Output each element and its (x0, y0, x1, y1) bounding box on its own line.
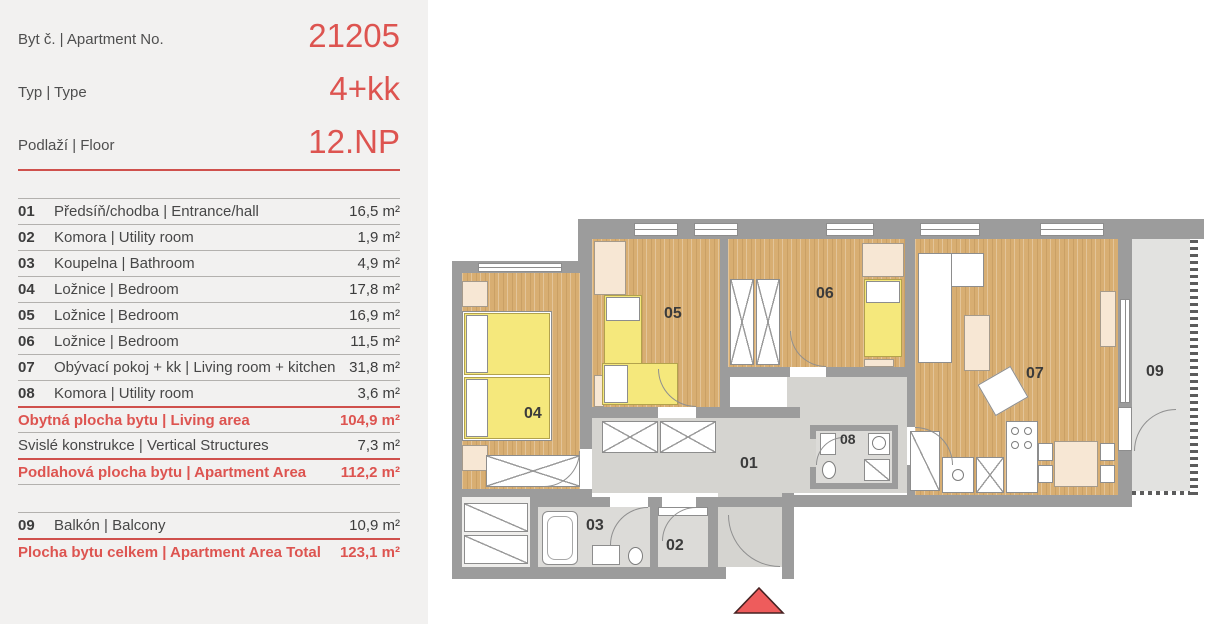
window (694, 223, 738, 236)
window (1040, 223, 1104, 236)
room-name: Ložnice | Bedroom (54, 307, 349, 324)
balcony-window (1120, 299, 1130, 403)
burner (1011, 427, 1019, 435)
balcony-edge-hatch (1190, 239, 1198, 495)
tv-cabinet (1100, 291, 1116, 347)
room-area: 3,6 m² (357, 385, 400, 402)
apartment-area-row: Podlahová plocha bytu | Apartment Area 1… (18, 458, 400, 484)
wardrobe (756, 279, 780, 365)
room-name: Ložnice | Bedroom (54, 281, 349, 298)
room-area: 31,8 m² (349, 359, 400, 376)
main-bottom-wall (794, 495, 1132, 507)
bed-pillow (604, 365, 628, 403)
hall-wardrobe (660, 421, 716, 453)
closet (594, 241, 626, 295)
wardrobe (464, 535, 528, 564)
hall-wardrobe (602, 421, 658, 453)
burner (1024, 441, 1032, 449)
table-gap (18, 485, 400, 512)
room-number: 06 (18, 333, 54, 350)
apartment-type-value: 4+kk (329, 72, 400, 105)
toilet (628, 547, 643, 565)
room-number: 09 (18, 517, 54, 534)
table-row: 08 Komora | Utility room 3,6 m² (18, 380, 400, 406)
vertical-structures-row: Svislé konstrukce | Vertical Structures … (18, 432, 400, 458)
window (826, 223, 874, 236)
summary-label: Svislé konstrukce | Vertical Structures (18, 437, 357, 454)
table-row: 05 Ložnice | Bedroom 16,9 m² (18, 302, 400, 328)
nightstand (462, 281, 488, 307)
room-06-bottom-wall (826, 367, 915, 377)
burner (1011, 441, 1019, 449)
total-label: Plocha bytu celkem | Apartment Area Tota… (18, 544, 340, 561)
bath-top-wall (648, 497, 662, 507)
room-area: 11,5 m² (350, 333, 400, 350)
room-name: Předsíň/chodba | Entrance/hall (54, 203, 349, 220)
kitchen-counter (976, 457, 1004, 493)
nightstand (864, 359, 894, 367)
room-number: 03 (18, 255, 54, 272)
room-05-bottom-wall (592, 407, 658, 418)
room-area: 4,9 m² (357, 255, 400, 272)
room-label-02: 02 (666, 537, 684, 555)
room-number: 08 (18, 385, 54, 402)
washing-machine-drum (872, 436, 886, 450)
apartment-type-row: Typ | Type 4+kk (18, 57, 400, 110)
room-number: 04 (18, 281, 54, 298)
apartment-number-row: Byt č. | Apartment No. 21205 (18, 4, 400, 57)
room-area: 1,9 m² (357, 229, 400, 246)
room-area: 16,5 m² (349, 203, 400, 220)
bath-02-divider (650, 507, 658, 567)
shower (864, 459, 890, 481)
wardrobe (730, 279, 754, 365)
apartment-type-label: Typ | Type (18, 84, 87, 105)
room-label-06: 06 (816, 285, 834, 303)
sofa (918, 253, 952, 363)
apartment-floor-label: Podlaží | Floor (18, 137, 114, 158)
room-area: 16,9 m² (349, 307, 400, 324)
summary-value: 104,9 m² (340, 412, 400, 429)
balcony-row: 09 Balkón | Balcony 10,9 m² (18, 512, 400, 538)
room-area: 17,8 m² (349, 281, 400, 298)
balcony-bottom-hatch (1132, 491, 1190, 495)
bath-top-wall (538, 497, 610, 507)
room-05-bottom-wall (696, 407, 800, 418)
room-name: Komora | Utility room (54, 385, 357, 402)
room-label-07: 07 (1026, 365, 1044, 383)
room-label-03: 03 (586, 517, 604, 535)
room-name: Ložnice | Bedroom (54, 333, 350, 350)
outer-wall-left (452, 261, 462, 579)
bed-pillow (466, 315, 488, 373)
room-number: 02 (18, 229, 54, 246)
room-label-08: 08 (840, 431, 856, 447)
room-06-07-divider (905, 239, 915, 377)
hall-07-wall (907, 377, 915, 427)
bath-top-wall (696, 497, 794, 507)
apartment-number-label: Byt č. | Apartment No. (18, 31, 164, 52)
room-name: Balkón | Balcony (54, 517, 349, 534)
outer-wall-bottom (452, 567, 726, 579)
apartment-floor-value: 12.NP (308, 125, 400, 158)
window (634, 223, 678, 236)
balcony-door-opening (1118, 407, 1132, 451)
chair (1038, 443, 1053, 461)
wardrobe (464, 503, 528, 532)
chair (1100, 443, 1115, 461)
apartment-info-panel: Byt č. | Apartment No. 21205 Typ | Type … (18, 4, 400, 564)
bed-pillow (866, 281, 900, 303)
floor-plan: 01 02 03 04 05 06 07 08 09 (452, 215, 1204, 624)
room-number: 07 (18, 359, 54, 376)
table-row: 01 Předsíň/chodba | Entrance/hall 16,5 m… (18, 198, 400, 224)
apartment-area-total-row: Plocha bytu celkem | Apartment Area Tota… (18, 538, 400, 564)
chair (1100, 465, 1115, 483)
summary-label: Obytná plocha bytu | Living area (18, 412, 340, 429)
bed-pillow (466, 379, 488, 437)
entrance-door-opening (726, 567, 782, 579)
closet (862, 243, 904, 277)
bathtub-inner (547, 516, 573, 560)
chair (1038, 465, 1053, 483)
total-value: 123,1 m² (340, 544, 400, 561)
apartment-sheet: { "colors": { "accent_red": "#dd5450", "… (0, 0, 1227, 624)
summary-label: Podlahová plocha bytu | Apartment Area (18, 464, 341, 481)
table-row: 07 Obývací pokoj + kk | Living room + ki… (18, 354, 400, 380)
room-06-bottom-wall (728, 367, 790, 377)
room-label-05: 05 (664, 305, 682, 323)
closet-bath-divider (530, 497, 538, 567)
entrance-arrow-icon (733, 586, 785, 615)
room-area: 10,9 m² (349, 517, 400, 534)
bathroom-sink (592, 545, 620, 565)
room-number: 01 (18, 203, 54, 220)
table-row: 03 Koupelna | Bathroom 4,9 m² (18, 250, 400, 276)
apartment-floor-row: Podlaží | Floor 12.NP (18, 110, 400, 163)
window (478, 263, 562, 272)
coffee-table (964, 315, 990, 371)
header-divider (18, 169, 400, 171)
room-label-09: 09 (1146, 363, 1164, 381)
room-05-06-divider (720, 239, 728, 367)
summary-value: 7,3 m² (357, 437, 400, 454)
room-label-04: 04 (524, 405, 542, 423)
apartment-number-value: 21205 (308, 19, 400, 52)
room-04-05-divider (580, 273, 592, 449)
room-name: Obývací pokoj + kk | Living room + kitch… (54, 359, 349, 376)
room-08-wall (810, 483, 898, 489)
living-area-total-row: Obytná plocha bytu | Living area 104,9 m… (18, 406, 400, 432)
table-row: 02 Komora | Utility room 1,9 m² (18, 224, 400, 250)
bed-pillow (606, 297, 640, 321)
burner (1024, 427, 1032, 435)
room-label-01: 01 (740, 455, 758, 473)
room-04-bottom-wall (452, 489, 592, 497)
room-area-table: 01 Předsíň/chodba | Entrance/hall 16,5 m… (18, 198, 400, 564)
table-row: 06 Ložnice | Bedroom 11,5 m² (18, 328, 400, 354)
room-name: Koupelna | Bathroom (54, 255, 357, 272)
room-08-wall (892, 425, 898, 489)
sink-basin (952, 469, 964, 481)
room02-hall-divider (708, 507, 718, 567)
dining-table (1054, 441, 1098, 487)
summary-value: 112,2 m² (341, 464, 400, 481)
room-number: 05 (18, 307, 54, 324)
window (920, 223, 980, 236)
table-row: 04 Ložnice | Bedroom 17,8 m² (18, 276, 400, 302)
room-name: Komora | Utility room (54, 229, 357, 246)
nightstand (462, 445, 488, 471)
